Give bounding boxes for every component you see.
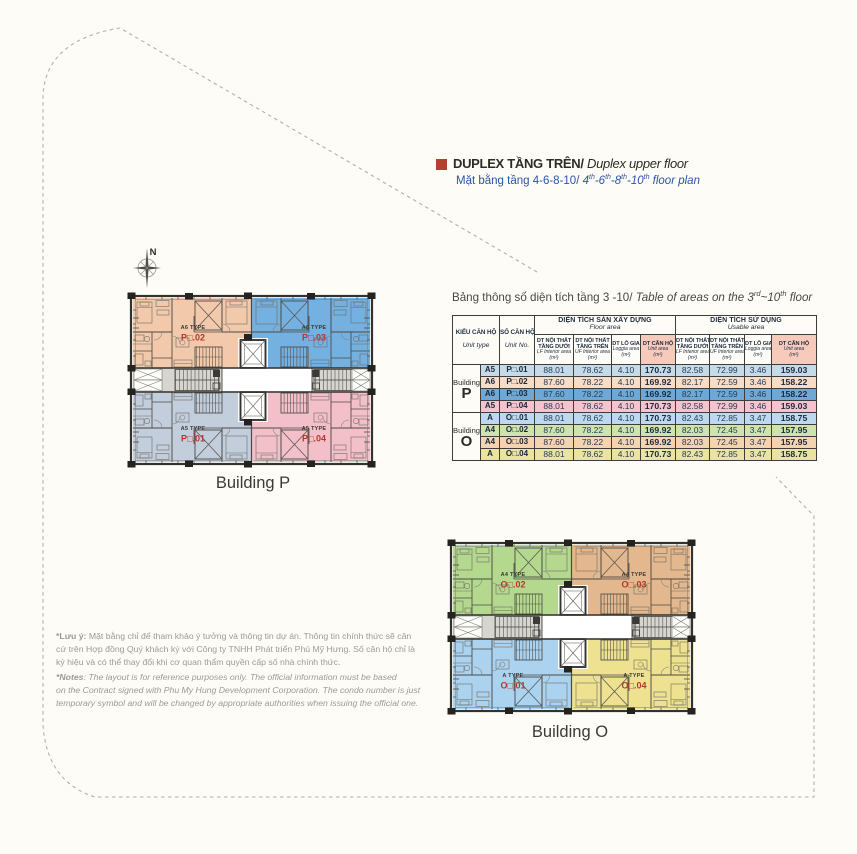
svg-text:P□.04: P□.04 (302, 434, 326, 444)
svg-text:O□.02: O□.02 (501, 580, 526, 590)
svg-text:N: N (150, 247, 157, 258)
svg-text:O□.04: O□.04 (622, 681, 647, 691)
svg-text:O□.01: O□.01 (501, 681, 526, 691)
svg-text:A TYPE: A TYPE (623, 673, 644, 679)
svg-text:A6 TYPE: A6 TYPE (302, 325, 327, 331)
svg-text:P□.02: P□.02 (181, 333, 205, 343)
svg-text:O□.03: O□.03 (622, 580, 647, 590)
svg-text:A6 TYPE: A6 TYPE (181, 325, 206, 331)
svg-text:A5 TYPE: A5 TYPE (181, 426, 206, 432)
svg-text:A4 TYPE: A4 TYPE (622, 572, 647, 578)
svg-text:P□.01: P□.01 (181, 434, 205, 444)
svg-text:P□.03: P□.03 (302, 333, 326, 343)
svg-text:A TYPE: A TYPE (502, 673, 523, 679)
svg-text:A5 TYPE: A5 TYPE (302, 426, 327, 432)
svg-text:A4 TYPE: A4 TYPE (501, 572, 526, 578)
